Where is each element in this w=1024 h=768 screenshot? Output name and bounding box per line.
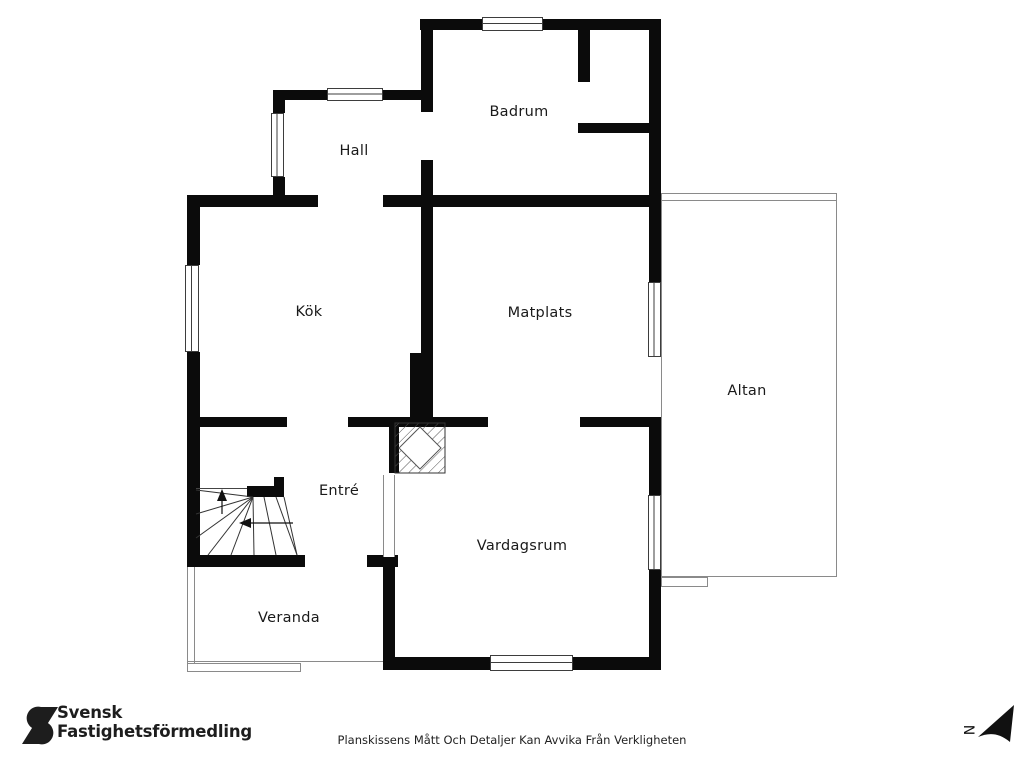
altan-step xyxy=(661,577,708,587)
veranda-step xyxy=(187,663,301,672)
stair-top-edge xyxy=(196,488,247,489)
wall-segment xyxy=(573,657,661,670)
wall-segment xyxy=(187,555,305,567)
wall-segment xyxy=(348,417,488,427)
wall-segment xyxy=(389,423,399,473)
window-symbol xyxy=(327,88,383,101)
stair-wall-stub xyxy=(274,477,284,486)
altan-inner-top-line xyxy=(661,200,837,201)
room-label-altan: Altan xyxy=(727,383,766,399)
stair-wall-bar xyxy=(247,486,284,497)
stairs-symbol xyxy=(196,490,297,555)
wall-segment xyxy=(273,177,285,195)
door-opening xyxy=(383,475,395,557)
wall-segment xyxy=(187,352,200,567)
room-label-entre: Entré xyxy=(319,483,359,499)
window-symbol xyxy=(271,113,284,177)
wall-segment xyxy=(273,90,285,113)
wall-segment xyxy=(187,195,200,265)
wall-segment xyxy=(578,123,649,133)
window-symbol xyxy=(648,282,661,357)
window-symbol xyxy=(648,495,661,570)
wall-segment xyxy=(383,657,490,670)
wall-segment xyxy=(649,417,661,495)
wall-segment xyxy=(649,19,661,282)
wall-segment xyxy=(187,195,318,207)
room-label-matplats: Matplats xyxy=(508,305,573,321)
room-label-kok: Kök xyxy=(296,304,323,320)
window-symbol xyxy=(185,265,199,352)
veranda-bottom-edge xyxy=(187,661,383,662)
wall-segment xyxy=(187,417,287,427)
chimney-symbol xyxy=(395,423,445,473)
room-label-vardagsrum: Vardagsrum xyxy=(477,538,568,554)
wall-segment xyxy=(580,417,661,427)
wall-segment xyxy=(421,19,433,112)
wall-segment xyxy=(383,557,395,670)
window-symbol xyxy=(482,17,543,31)
wall-segment xyxy=(421,160,433,353)
window-symbol xyxy=(490,655,573,671)
room-label-badrum: Badrum xyxy=(489,104,548,120)
wall-segment xyxy=(649,570,661,670)
wall-segment xyxy=(578,30,590,82)
wall-segment xyxy=(543,19,661,30)
room-label-veranda: Veranda xyxy=(258,610,320,626)
room-label-hall: Hall xyxy=(339,143,368,159)
veranda-left-edge xyxy=(187,567,195,663)
disclaimer-text: Planskissens Mått Och Detaljer Kan Avvik… xyxy=(0,733,1024,747)
brand-name-line1: Svensk xyxy=(57,704,252,723)
wall-segment xyxy=(410,353,433,417)
floor-plan: Badrum Hall Kök Matplats Altan Entré Var… xyxy=(0,0,1024,768)
